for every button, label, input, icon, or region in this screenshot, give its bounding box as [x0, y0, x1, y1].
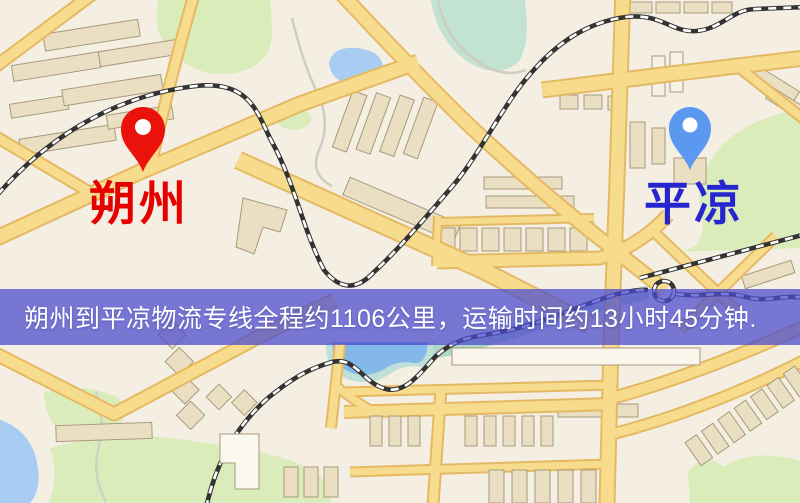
- destination-pin-hole: [683, 118, 698, 133]
- route-info-banner: 朔州到平凉物流专线全程约1106公里，运输时间约13小时45分钟.: [0, 289, 800, 345]
- origin-pin-hole: [135, 119, 151, 135]
- origin-label: 朔州: [89, 177, 189, 232]
- route-info-text: 朔州到平凉物流专线全程约1106公里，运输时间约13小时45分钟.: [24, 299, 757, 335]
- destination-label: 平凉: [644, 177, 744, 232]
- map-canvas[interactable]: 朔州 平凉: [0, 0, 800, 503]
- map-screenshot: 朔州 平凉 朔州到平凉物流专线全程约1106公里，运输时间约13小时45分钟.: [0, 0, 800, 503]
